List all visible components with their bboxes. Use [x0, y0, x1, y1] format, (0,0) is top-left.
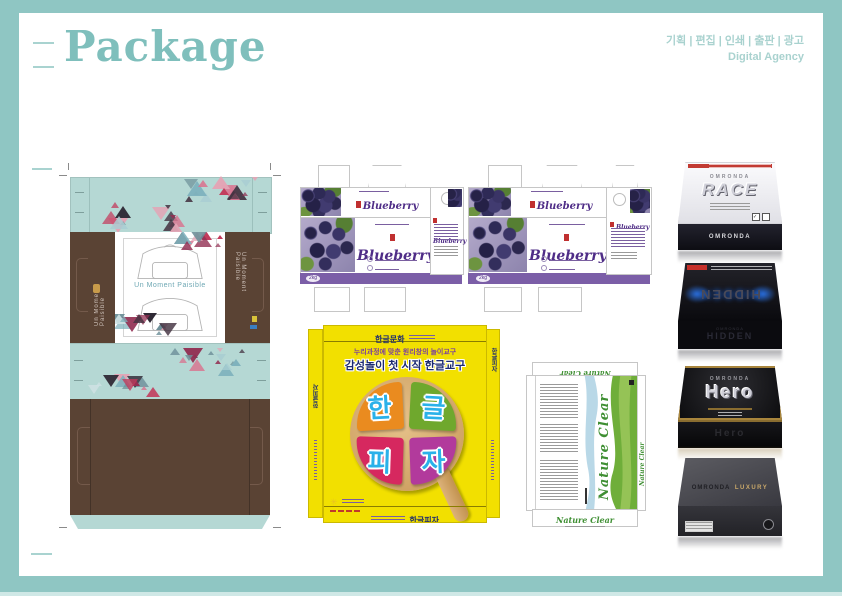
front-panel: Un Moment Paisible Un Moment Paisible Un…	[70, 232, 270, 343]
barcode-mark	[252, 316, 257, 322]
blueberry-logo-small: Blueberry	[537, 201, 593, 212]
red-seal	[356, 201, 361, 208]
blueberry-photo	[469, 188, 511, 216]
triangle-pattern	[84, 370, 162, 396]
maker-logo	[629, 380, 634, 385]
triangle-pattern	[170, 344, 262, 372]
instructions-text	[540, 460, 578, 502]
syllable-han: 한	[367, 387, 393, 425]
product-name: LUXURY	[735, 485, 768, 491]
hangul-pizza-package: 한글피자 한글피자 한글문화 누리과정에 맞춘 원리창의 놀이교구 감성놀이 첫…	[308, 325, 500, 521]
back-panel	[70, 399, 270, 515]
middle-band	[70, 343, 270, 400]
side-label: 한글피자	[312, 348, 321, 408]
product-name: HIDDEN	[699, 287, 761, 302]
logo-mark	[250, 325, 257, 329]
frame-top	[0, 0, 842, 13]
weight-label: 2kg	[306, 275, 320, 282]
syllable-pi: 피	[367, 442, 392, 480]
title-tick-top	[33, 42, 54, 44]
title-tick-bottom	[33, 66, 54, 68]
hero-box: OMRONDA Hero Hero	[668, 366, 794, 462]
portfolio-page: Package 기획 | 편집 | 인쇄 | 출판 | 광고 Digital A…	[0, 0, 842, 596]
pizza-slice-purple: 자	[409, 436, 458, 485]
blueberry-photo	[469, 218, 527, 272]
front-window: Un Moment Paisible	[115, 232, 225, 343]
red-seal	[564, 234, 569, 241]
margin-tick-upper	[32, 168, 52, 170]
blueberry-dieline-right: Blueberry Blueberry 2kg Blueberry	[468, 163, 650, 313]
pizza-slice-green: 글	[409, 382, 458, 431]
hidden-box: HIDDEN OMRONDA HIDDEN	[668, 263, 794, 363]
blueberry-photo	[630, 189, 650, 213]
product-name: Hero	[678, 382, 782, 403]
slogan-text: Un Moment Paisible	[115, 282, 225, 289]
pizza-front-panel: 한글문화 누리과정에 맞춘 원리창의 놀이교구 감성놀이 첫 시작 한글교구 한…	[323, 325, 487, 523]
armchair-outline-bottom	[132, 294, 208, 332]
brand-vertical: Nature Clear	[597, 390, 612, 500]
round-emblem	[763, 519, 774, 530]
lid-panel	[70, 177, 272, 234]
blueberry-logo-small: Blueberry	[363, 201, 419, 212]
blueberry-photo	[301, 218, 355, 272]
product-name: RACE	[678, 180, 782, 200]
tagline-top: 누리과정에 맞춘 원리창의 놀이교구	[324, 347, 486, 357]
frame-bottom-edge	[0, 592, 842, 596]
tuck-flap	[70, 515, 270, 529]
maker-logo: ✳	[330, 492, 364, 512]
front-name: HIDDEN	[678, 331, 782, 341]
pizza-slice-orange: 한	[355, 382, 404, 431]
header-brand: 한글문화	[375, 335, 404, 344]
frame-right	[823, 0, 842, 596]
red-seal	[530, 201, 535, 208]
brand-side: Nature Clear	[639, 406, 646, 486]
triangle-pattern	[97, 200, 185, 234]
armchair-outline-top	[132, 242, 208, 280]
side-label-right: Un Moment Paisible	[234, 252, 246, 322]
nature-clear-dieline: Nature Clear Nature Clear Nature Cl	[518, 362, 652, 528]
tagline-main: 감성놀이 첫 시작 한글교구	[324, 357, 486, 373]
front-name: Hero	[715, 428, 746, 439]
margin-tick-lower	[31, 553, 52, 555]
blueberry-dieline-left: Blueberry Blueberry 2kg Blueberry	[300, 163, 462, 313]
product-box-column: OMRONDA RACE ✓ OMRONDA HIDDEN	[668, 160, 794, 560]
race-box: OMRONDA RACE ✓ OMRONDA	[668, 162, 794, 262]
syllable-geul: 글	[421, 387, 447, 425]
agency-text: Digital Agency	[564, 50, 804, 66]
instructions-text	[540, 384, 578, 418]
blueberry-photo	[448, 189, 462, 207]
syllable-ja: 자	[421, 442, 446, 480]
services-text: 기획 | 편집 | 인쇄 | 출판 | 광고	[564, 34, 804, 50]
red-seal	[390, 234, 395, 241]
pizza-slice-red: 피	[355, 436, 404, 485]
red-label	[687, 265, 707, 270]
pizza-flap-left: 한글피자	[308, 329, 323, 518]
brand-bottom-flap: Nature Clear	[556, 515, 614, 525]
nature-main-face: Nature Clear	[581, 376, 637, 510]
pizza-flap-right: 한글피자	[485, 329, 500, 518]
side-label: 한글피자	[489, 348, 498, 408]
instructions-text	[540, 424, 578, 454]
bottom-label: 한글피자	[410, 516, 439, 523]
crown-logo	[93, 284, 100, 293]
blueberry-photo	[301, 188, 341, 216]
furniture-package-dieline: Un Moment Paisible Un Moment Paisible Un…	[68, 171, 272, 531]
shipping-label	[686, 522, 712, 531]
brand-text: OMRONDA	[692, 485, 731, 491]
frame-left	[0, 0, 19, 596]
front-brand: OMRONDA	[709, 234, 751, 240]
page-title: Package	[64, 26, 267, 68]
weight-label: 2kg	[476, 275, 490, 282]
luxury-box: OMRONDA LUXURY	[668, 458, 794, 554]
header-right: 기획 | 편집 | 인쇄 | 출판 | 광고 Digital Agency	[564, 34, 804, 66]
